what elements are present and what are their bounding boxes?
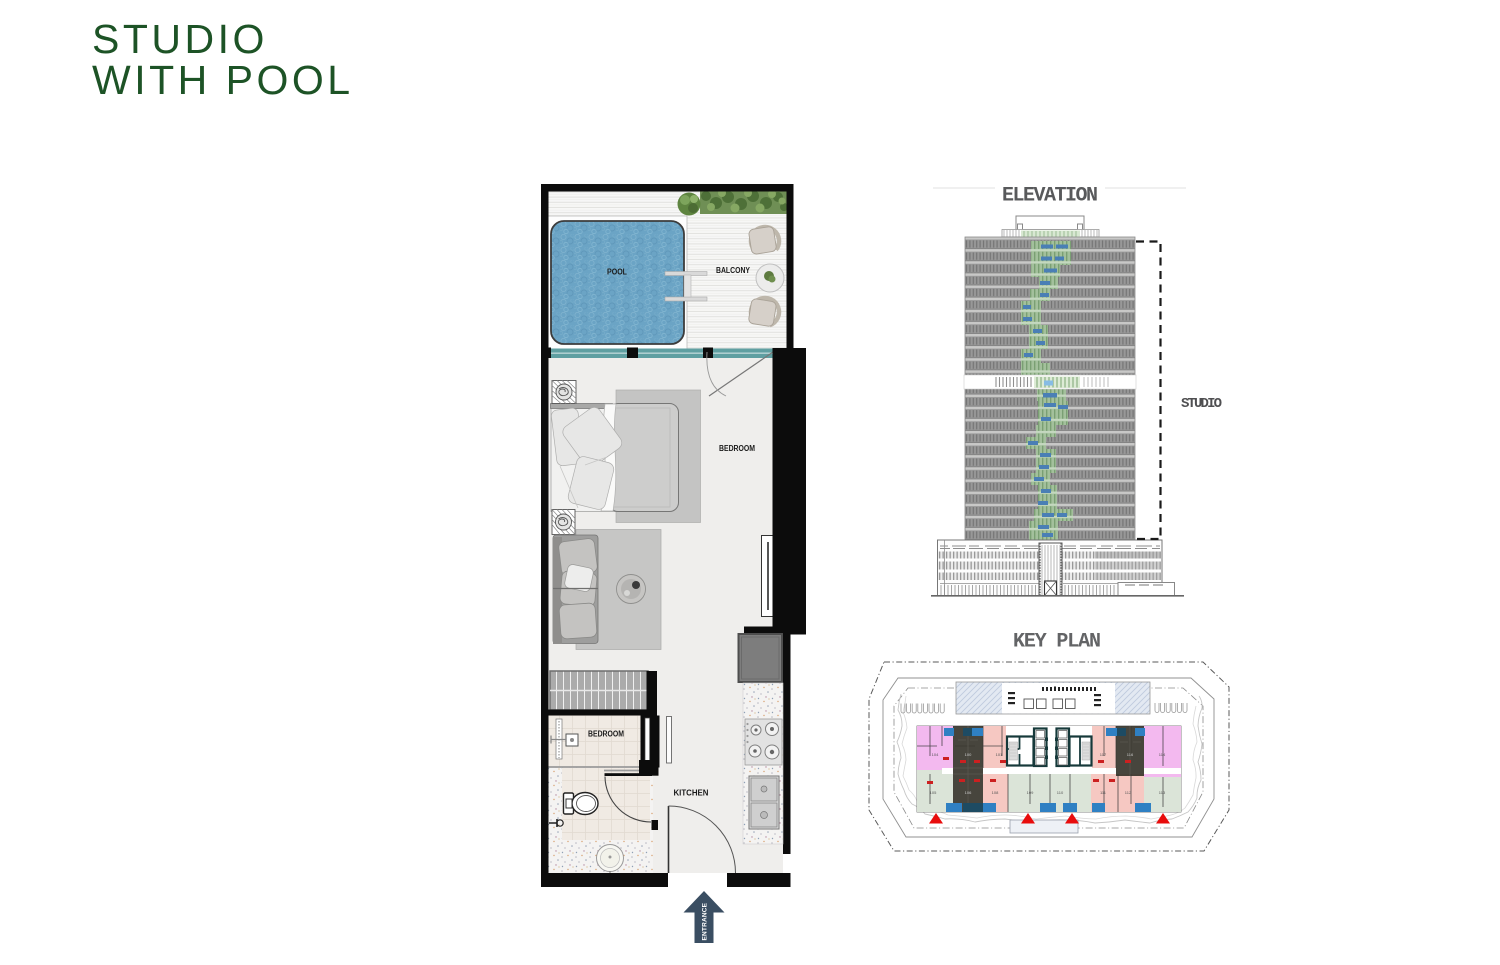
svg-text:111: 111 <box>1100 790 1107 795</box>
svg-text:BALCONY: BALCONY <box>716 266 751 275</box>
svg-text:108: 108 <box>992 790 999 795</box>
svg-text:ENTRANCE: ENTRANCE <box>701 902 708 940</box>
svg-text:BEDROOM: BEDROOM <box>719 444 755 453</box>
svg-text:101: 101 <box>996 752 1003 757</box>
svg-text:POOL: POOL <box>607 268 627 277</box>
svg-text:WITH POOL: WITH POOL <box>92 57 354 103</box>
svg-text:110: 110 <box>1057 790 1064 795</box>
svg-text:114: 114 <box>1159 752 1166 757</box>
svg-text:BEDROOM: BEDROOM <box>588 730 624 739</box>
svg-text:STUDIO: STUDIO <box>92 16 268 62</box>
svg-text:109: 109 <box>1027 790 1034 795</box>
svg-text:KITCHEN: KITCHEN <box>674 788 709 798</box>
svg-text:113: 113 <box>1159 790 1166 795</box>
svg-text:104: 104 <box>932 752 939 757</box>
svg-text:105: 105 <box>930 790 937 795</box>
svg-text:116: 116 <box>1127 752 1134 757</box>
svg-text:112: 112 <box>1125 790 1132 795</box>
svg-text:100: 100 <box>965 752 972 757</box>
svg-text:106: 106 <box>965 790 972 795</box>
svg-text:STUDIO: STUDIO <box>1181 396 1222 412</box>
svg-text:117: 117 <box>1100 752 1107 757</box>
svg-text:KEY PLAN: KEY PLAN <box>1013 631 1101 654</box>
svg-text:ELEVATION: ELEVATION <box>1002 185 1098 208</box>
